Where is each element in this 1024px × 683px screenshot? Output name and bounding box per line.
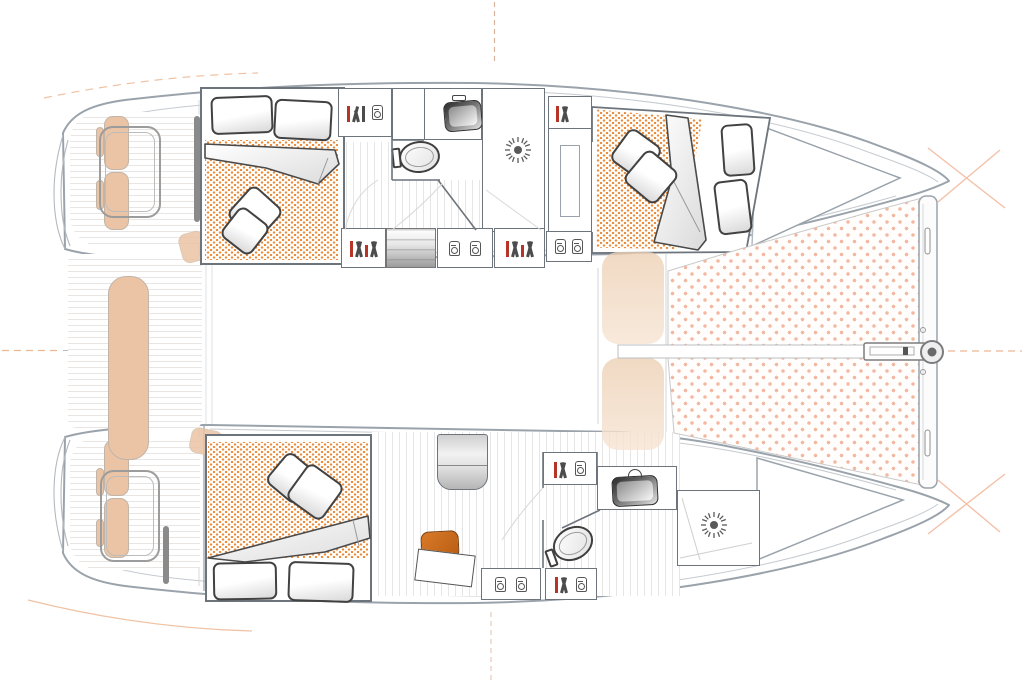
sunburst-drain-icon	[698, 509, 730, 541]
anchor-bar	[864, 343, 926, 360]
catamaran-floor-plan	[0, 0, 1024, 683]
trampoline-outlines	[668, 198, 922, 485]
port-head-walls	[392, 88, 476, 230]
door-swing-arcs	[345, 180, 543, 540]
sunburst-drain-icon	[502, 134, 534, 166]
beam-slot	[925, 228, 930, 254]
interior-linework	[0, 0, 1024, 683]
starboard-head-walls	[543, 452, 600, 568]
beam-slot	[925, 430, 930, 456]
